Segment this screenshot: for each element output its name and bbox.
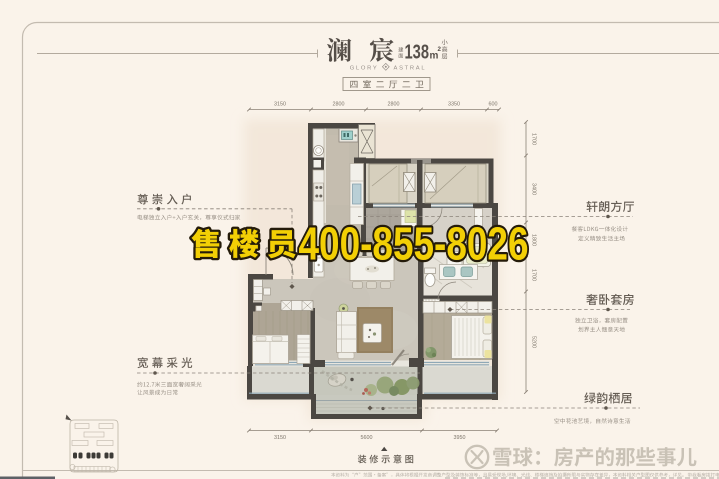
svg-text:2800: 2800 xyxy=(388,102,400,108)
svg-text:5200: 5200 xyxy=(531,336,537,348)
svg-text:138: 138 xyxy=(405,42,430,64)
svg-text:1700: 1700 xyxy=(531,269,537,281)
svg-text:5600: 5600 xyxy=(361,435,373,441)
svg-text:2800: 2800 xyxy=(333,102,345,108)
svg-text:2: 2 xyxy=(438,46,442,53)
svg-text:1700: 1700 xyxy=(531,133,537,145)
svg-text:ASTRAL: ASTRAL xyxy=(394,65,427,71)
svg-text:GLORY: GLORY xyxy=(350,65,379,71)
svg-text:3150: 3150 xyxy=(274,102,286,108)
svg-text:3150: 3150 xyxy=(274,435,286,441)
svg-text:3950: 3950 xyxy=(454,435,466,441)
svg-text:400-855-8026: 400-855-8026 xyxy=(299,218,529,270)
svg-text:600: 600 xyxy=(489,102,498,108)
svg-text:3350: 3350 xyxy=(448,102,460,108)
svg-text:1800: 1800 xyxy=(531,234,537,246)
svg-text:3400: 3400 xyxy=(531,183,537,195)
